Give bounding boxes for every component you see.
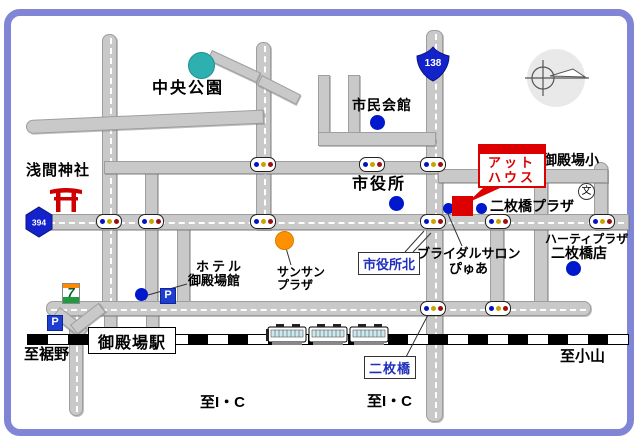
- nimaibashi-plaza-marker: [476, 203, 487, 214]
- label-sansan-line2: プラザ: [277, 279, 313, 292]
- signal-north-park: [250, 157, 276, 172]
- sansan-plaza-marker: [275, 231, 294, 250]
- signal-main-497: [485, 214, 511, 229]
- label-hotel-line2: 御殿場館: [188, 274, 240, 288]
- at-house-building-marker: [452, 196, 473, 216]
- label-gotemba-station: 御殿場駅: [98, 329, 166, 353]
- label-sengen-shrine: 浅間神社: [26, 163, 90, 180]
- gotemba-access-map: 394 138 P P 7 文 中央公園 市民会館 浅間神社 市役: [0, 0, 640, 446]
- label-central-park: 中央公園: [152, 80, 224, 98]
- label-bridal-salon-line1: ブライダルサロン: [417, 247, 520, 261]
- label-at-house-line1: アット: [488, 155, 536, 170]
- gotemba-station-box: 御殿場駅: [88, 327, 176, 354]
- hotel-marker: [135, 288, 148, 301]
- school-symbol-icon: 文: [578, 183, 595, 200]
- label-hearty-plaza-line2: 二枚橋店: [551, 246, 607, 261]
- label-at-house-line2: ハウス: [488, 170, 536, 185]
- label-gotemba-elementary: 御殿場小: [543, 153, 599, 168]
- civic-hall-marker: [370, 115, 385, 130]
- shiyakusho-kita-box: 市役所北: [358, 252, 420, 275]
- label-shiyakusho-kita: 市役所北: [363, 257, 415, 272]
- label-nimaibashi-plaza: 二枚橋プラザ: [490, 199, 574, 214]
- signal-main-west1: [96, 214, 122, 229]
- hearty-plaza-marker: [566, 261, 581, 276]
- at-house-callout: アット ハウス: [478, 144, 546, 188]
- label-to-susono: 至裾野: [24, 347, 69, 364]
- signal-nimaibashi: [420, 301, 446, 316]
- city-hall-marker: [389, 196, 404, 211]
- nimaibashi-box: 二枚橋: [364, 356, 416, 379]
- hotel-parking-icon: P: [160, 288, 176, 304]
- signal-main-park: [250, 214, 276, 229]
- signal-north-cityhall: [359, 157, 385, 172]
- svg-text:394: 394: [32, 218, 46, 228]
- route-138-badge: 138: [416, 46, 450, 82]
- label-bridal-salon-line2: ぴゅあ: [449, 262, 488, 276]
- svg-text:138: 138: [425, 58, 442, 69]
- label-city-hall: 市役所: [352, 176, 406, 194]
- label-nimaibashi: 二枚橋: [369, 361, 411, 376]
- convenience-store-icon: 7: [62, 283, 80, 304]
- signal-main-school: [589, 214, 615, 229]
- signal-south-497: [485, 301, 511, 316]
- compass-icon: [520, 47, 592, 109]
- station-parking-icon: P: [47, 315, 63, 331]
- signal-shiyakusho-kita: [420, 214, 446, 229]
- central-park-marker: [188, 52, 215, 79]
- torii-icon: [50, 186, 82, 212]
- train-icon: [266, 320, 392, 350]
- label-to-ic-right: 至I・C: [367, 394, 412, 411]
- label-civic-hall: 市民会館: [352, 98, 412, 113]
- label-to-ic-left: 至I・C: [200, 395, 245, 412]
- signal-north-138: [420, 157, 446, 172]
- label-to-oyama: 至小山: [560, 349, 605, 366]
- signal-main-west2: [138, 214, 164, 229]
